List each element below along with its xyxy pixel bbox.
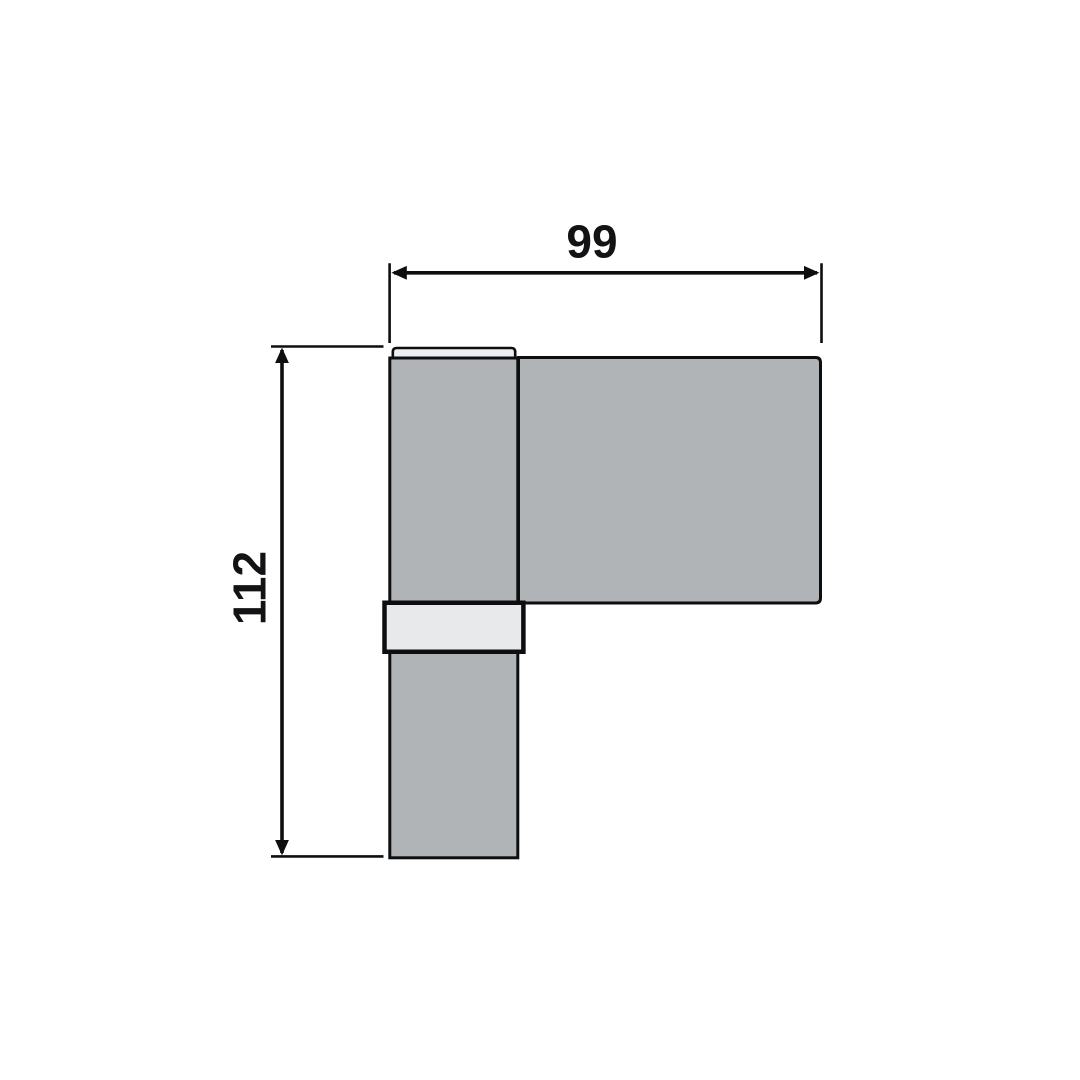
svg-text:99: 99 <box>566 216 617 268</box>
svg-text:112: 112 <box>224 551 276 625</box>
